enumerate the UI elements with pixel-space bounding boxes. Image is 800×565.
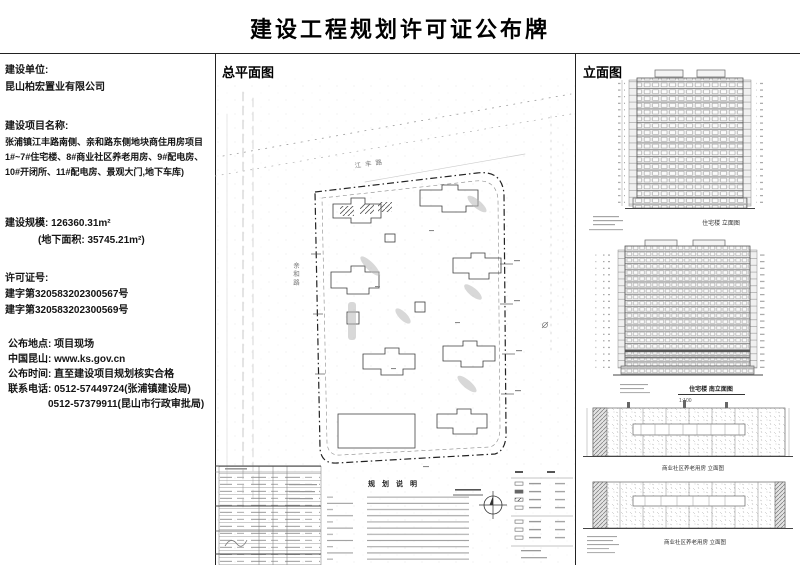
permit-number-1: 建字第320583202300567号 [5,287,211,302]
permit-number-2: 建字第320583202300569号 [5,303,211,318]
phone-value-1: 0512-57449724(张浦镇建设局) [54,384,191,395]
project-line-3: 10#开闭所、11#配电房、景观大门,地下车库) [5,165,211,180]
website-value: www.ks.gov.cn [54,354,125,365]
tower-2-caption: 住宅楼 南立面图 [689,385,733,393]
scale-sub-value: (地下面积: 35745.21m²) [38,233,244,248]
indicator-table [215,466,321,565]
low-2-caption-block: 商业社区养老用房 立面图 [587,536,727,553]
elevation-drawings: 住宅楼 立面图 住宅楼 南立面图 1:100 [575,54,800,565]
scale-row: 建设规模: 126360.31m² [5,216,211,231]
time-value: 直至建设项目规划核实合格 [54,369,174,380]
low-elevation-2 [583,482,793,529]
unit-label: 建设单位: [5,63,211,78]
website-row: 中国昆山: www.ks.gov.cn [8,352,214,367]
place-value: 项目现场 [54,339,94,350]
tower-1-caption: 住宅楼 立面图 [702,219,740,227]
permit-label: 许可证号: [5,271,211,286]
place-label: 公布地点: [8,339,51,350]
project-label: 建设项目名称: [5,119,211,134]
plan-notes-title: 规划说明 [368,479,424,488]
scale-value: 126360.31m² [51,218,111,229]
phone-label: 联系电话: [8,384,51,395]
permit-board: 建设工程规划许可证公布牌 建设单位: 昆山柏宏置业有限公司 建设项目名称: 张浦… [0,0,800,565]
page-title: 建设工程规划许可证公布牌 [0,12,800,44]
low-elevation-1 [583,400,793,457]
scale-label: 建设规模: [5,218,48,229]
place-row: 公布地点: 项目现场 [8,337,214,352]
tower-2-caption-block: 住宅楼 南立面图 1:100 [620,384,745,404]
website-label: 中国昆山: [8,354,51,365]
plan-notes-lines [327,492,469,562]
tower-1-caption-block: 住宅楼 立面图 [589,216,740,230]
project-line-2: 1#~7#住宅楼、8#商业社区养老用房、9#配电房、 [5,150,211,165]
project-line-1: 张浦镇江丰路南侧、亲和路东侧地块商住用房项目 [5,135,211,150]
time-label: 公布时间: [8,369,51,380]
phone-row-1: 联系电话: 0512-57449724(张浦镇建设局) [8,382,214,397]
low-1-caption: 商业社区养老用房 立面图 [662,464,725,472]
unit-value: 昆山柏宏置业有限公司 [5,80,211,95]
site-plan-drawing: 江丰路 亲和路 [215,54,575,565]
tower-elevation-1 [618,70,763,209]
plaza-area [338,414,415,448]
time-row: 公布时间: 直至建设项目规划核实合格 [8,367,214,382]
tower-elevation-2 [595,240,766,375]
low-2-caption: 商业社区养老用房 立面图 [664,538,727,546]
